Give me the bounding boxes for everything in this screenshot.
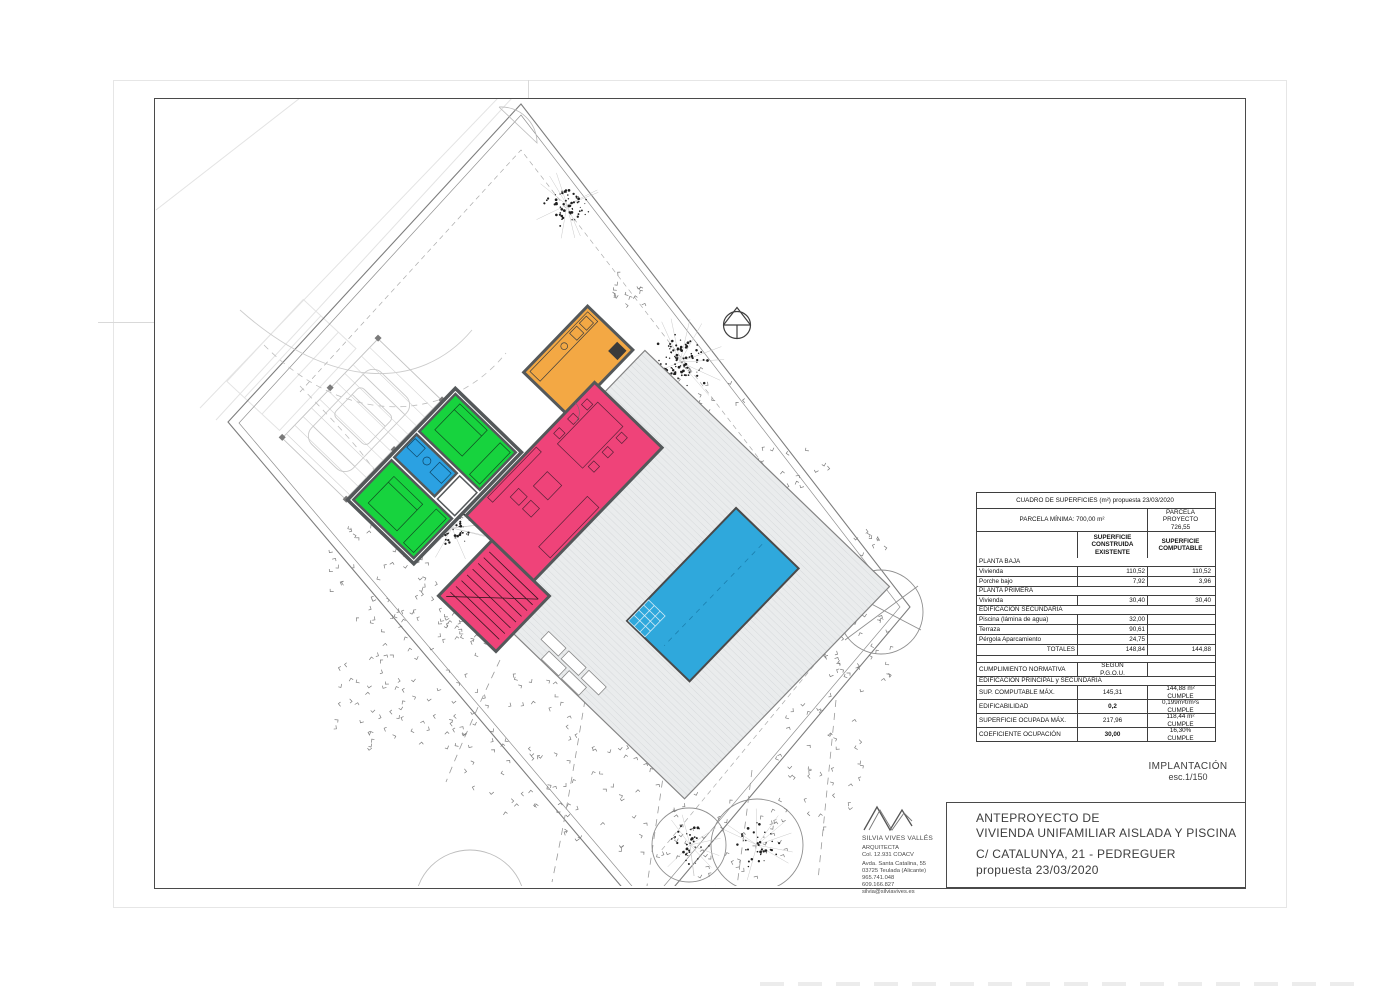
table-cell: 144,88 m²CUMPLE: [1147, 686, 1213, 699]
table-colhead-row: SUPERFICIECONSTRUIDAEXISTENTE SUPERFICIE…: [977, 531, 1215, 558]
table-cell: 32,00: [1077, 615, 1147, 624]
parcela-proyecto: PARCELAPROYECTO726,55: [1147, 509, 1213, 531]
colhead-existing: SUPERFICIECONSTRUIDAEXISTENTE: [1077, 532, 1147, 558]
table-cell: [1147, 615, 1213, 624]
colhead-computable: SUPERFICIECOMPUTABLE: [1147, 532, 1213, 558]
table-cell: 0,199m²t/m²sCUMPLE: [1147, 700, 1213, 713]
table-row: EDIFICABILIDAD0,20,199m²t/m²sCUMPLE: [977, 699, 1215, 713]
table-cell: 24,75: [1077, 635, 1147, 644]
table-row: Vivienda30,4030,40: [977, 595, 1215, 605]
sheet-label-scale: esc.1/150: [1136, 772, 1240, 782]
architect-name: SILVIA VIVES VALLÉS: [862, 835, 933, 842]
table-cell: PLANTA PRIMERA: [977, 587, 1213, 595]
table-cell: 30,00: [1077, 728, 1147, 741]
table-row: CUMPLIMIENTO NORMATIVASEGUNP.G.O.U.: [977, 662, 1215, 676]
table-row: EDIFICACIÓN SECUNDARIA: [977, 605, 1215, 614]
table-row: SUP. COMPUTABLE MÁX.145,31144,88 m²CUMPL…: [977, 685, 1215, 699]
table-cell: 118,44 m²CUMPLE: [1147, 714, 1213, 727]
table-cell: EDIFICABILIDAD: [977, 700, 1077, 713]
table-cell: 110,52: [1077, 567, 1147, 576]
scan-artifact-strip: [760, 982, 1360, 986]
table-row: Vivienda110,52110,52: [977, 566, 1215, 576]
table-row: PLANTA PRIMERA: [977, 586, 1215, 595]
table-cell: EDIFICACIÓN SECUNDARIA: [977, 606, 1213, 614]
table-row: PLANTA BAJA: [977, 558, 1215, 566]
drawing-sheet: CUADRO DE SUPERFICIES (m²) propuesta 23/…: [0, 0, 1400, 989]
table-cell: [1147, 625, 1213, 634]
table-cell: Terraza: [977, 625, 1077, 634]
architect-email: silvia@silviavives.es: [862, 889, 915, 895]
architect-phone-2: 609.166.827: [862, 882, 894, 888]
table-cell: COEFICIENTE OCUPACIÓN: [977, 728, 1077, 741]
architect-logo-icon: [862, 802, 918, 834]
table-cell: 148,84: [1077, 645, 1147, 655]
table-cell: 16,30%CUMPLE: [1147, 728, 1213, 741]
table-cell: SUPERFICIE OCUPADA MÁX.: [977, 714, 1077, 727]
table-cell: Vivienda: [977, 567, 1077, 576]
table-cell: 7,92: [1077, 577, 1147, 586]
table-cell: Piscina (lámina de agua): [977, 615, 1077, 624]
table-cell: 30,40: [1077, 596, 1147, 605]
table-cell: 144,88: [1147, 645, 1213, 655]
project-address: C/ CATALUNYA, 21 - PEDREGUER: [976, 847, 1176, 861]
table-row: Porche bajo7,923,96: [977, 576, 1215, 586]
table-row: COEFICIENTE OCUPACIÓN30,0016,30%CUMPLE: [977, 727, 1215, 741]
table-cell: CUMPLIMIENTO NORMATIVA: [977, 663, 1077, 676]
architect-address-1: Avda. Santa Catalina, 55: [862, 861, 926, 867]
table-cell: EDIFICACIÓN PRINCIPAL y SECUNDARIA: [977, 677, 1213, 685]
table-row: [977, 655, 1215, 662]
table-cell: Porche bajo: [977, 577, 1077, 586]
architect-title: ARQUITECTA: [862, 845, 899, 851]
table-cell: [1147, 663, 1213, 676]
parcela-minima: PARCELA MÍNIMA: 700,00 m²: [977, 509, 1147, 531]
table-parcela-row: PARCELA MÍNIMA: 700,00 m² PARCELAPROYECT…: [977, 508, 1215, 531]
table-row: TOTALES148,84144,88: [977, 644, 1215, 655]
table-cell: 145,31: [1077, 686, 1147, 699]
architect-address-2: 03725 Teulada (Alicante): [862, 868, 926, 874]
table-row: EDIFICACIÓN PRINCIPAL y SECUNDARIA: [977, 676, 1215, 685]
table-cell: 3,96: [1147, 577, 1213, 586]
table-cell: 110,52: [1147, 567, 1213, 576]
project-proposal-date: propuesta 23/03/2020: [976, 863, 1099, 877]
table-cell: SUP. COMPUTABLE MÁX.: [977, 686, 1077, 699]
title-block: ANTEPROYECTO DE VIVIENDA UNIFAMILIAR AIS…: [946, 802, 1246, 888]
table-cell: TOTALES: [977, 645, 1077, 655]
table-cell: Pérgola Aparcamiento: [977, 635, 1077, 644]
table-cell: 217,96: [1077, 714, 1147, 727]
table-cell: 30,40: [1147, 596, 1213, 605]
sheet-label: IMPLANTACIÓN esc.1/150: [1136, 761, 1240, 782]
table-cell: [977, 656, 1213, 662]
table-cell: Vivienda: [977, 596, 1077, 605]
table-cell: PLANTA BAJA: [977, 558, 1213, 566]
table-cell: 0,2: [1077, 700, 1147, 713]
table-row: Piscina (lámina de agua)32,00: [977, 614, 1215, 624]
project-title-line2: VIVIENDA UNIFAMILIAR AISLADA Y PISCINA: [976, 826, 1236, 840]
table-cell: SEGUNP.G.O.U.: [1077, 663, 1147, 676]
table-title-row: CUADRO DE SUPERFICIES (m²) propuesta 23/…: [977, 493, 1215, 508]
table-row: Terraza90,61: [977, 624, 1215, 634]
architect-license: Col. 12.931 COACV: [862, 852, 914, 858]
project-title-line1: ANTEPROYECTO DE: [976, 811, 1100, 825]
table-cell: [1147, 635, 1213, 644]
architect-phone-1: 965.741.048: [862, 875, 894, 881]
areas-table: CUADRO DE SUPERFICIES (m²) propuesta 23/…: [976, 492, 1216, 742]
table-row: SUPERFICIE OCUPADA MÁX.217,96118,44 m²CU…: [977, 713, 1215, 727]
table-title: CUADRO DE SUPERFICIES (m²) propuesta 23/…: [977, 493, 1213, 508]
table-row: Pérgola Aparcamiento24,75: [977, 634, 1215, 644]
colhead-empty: [977, 532, 1077, 558]
table-cell: 90,61: [1077, 625, 1147, 634]
sheet-label-name: IMPLANTACIÓN: [1136, 761, 1240, 772]
